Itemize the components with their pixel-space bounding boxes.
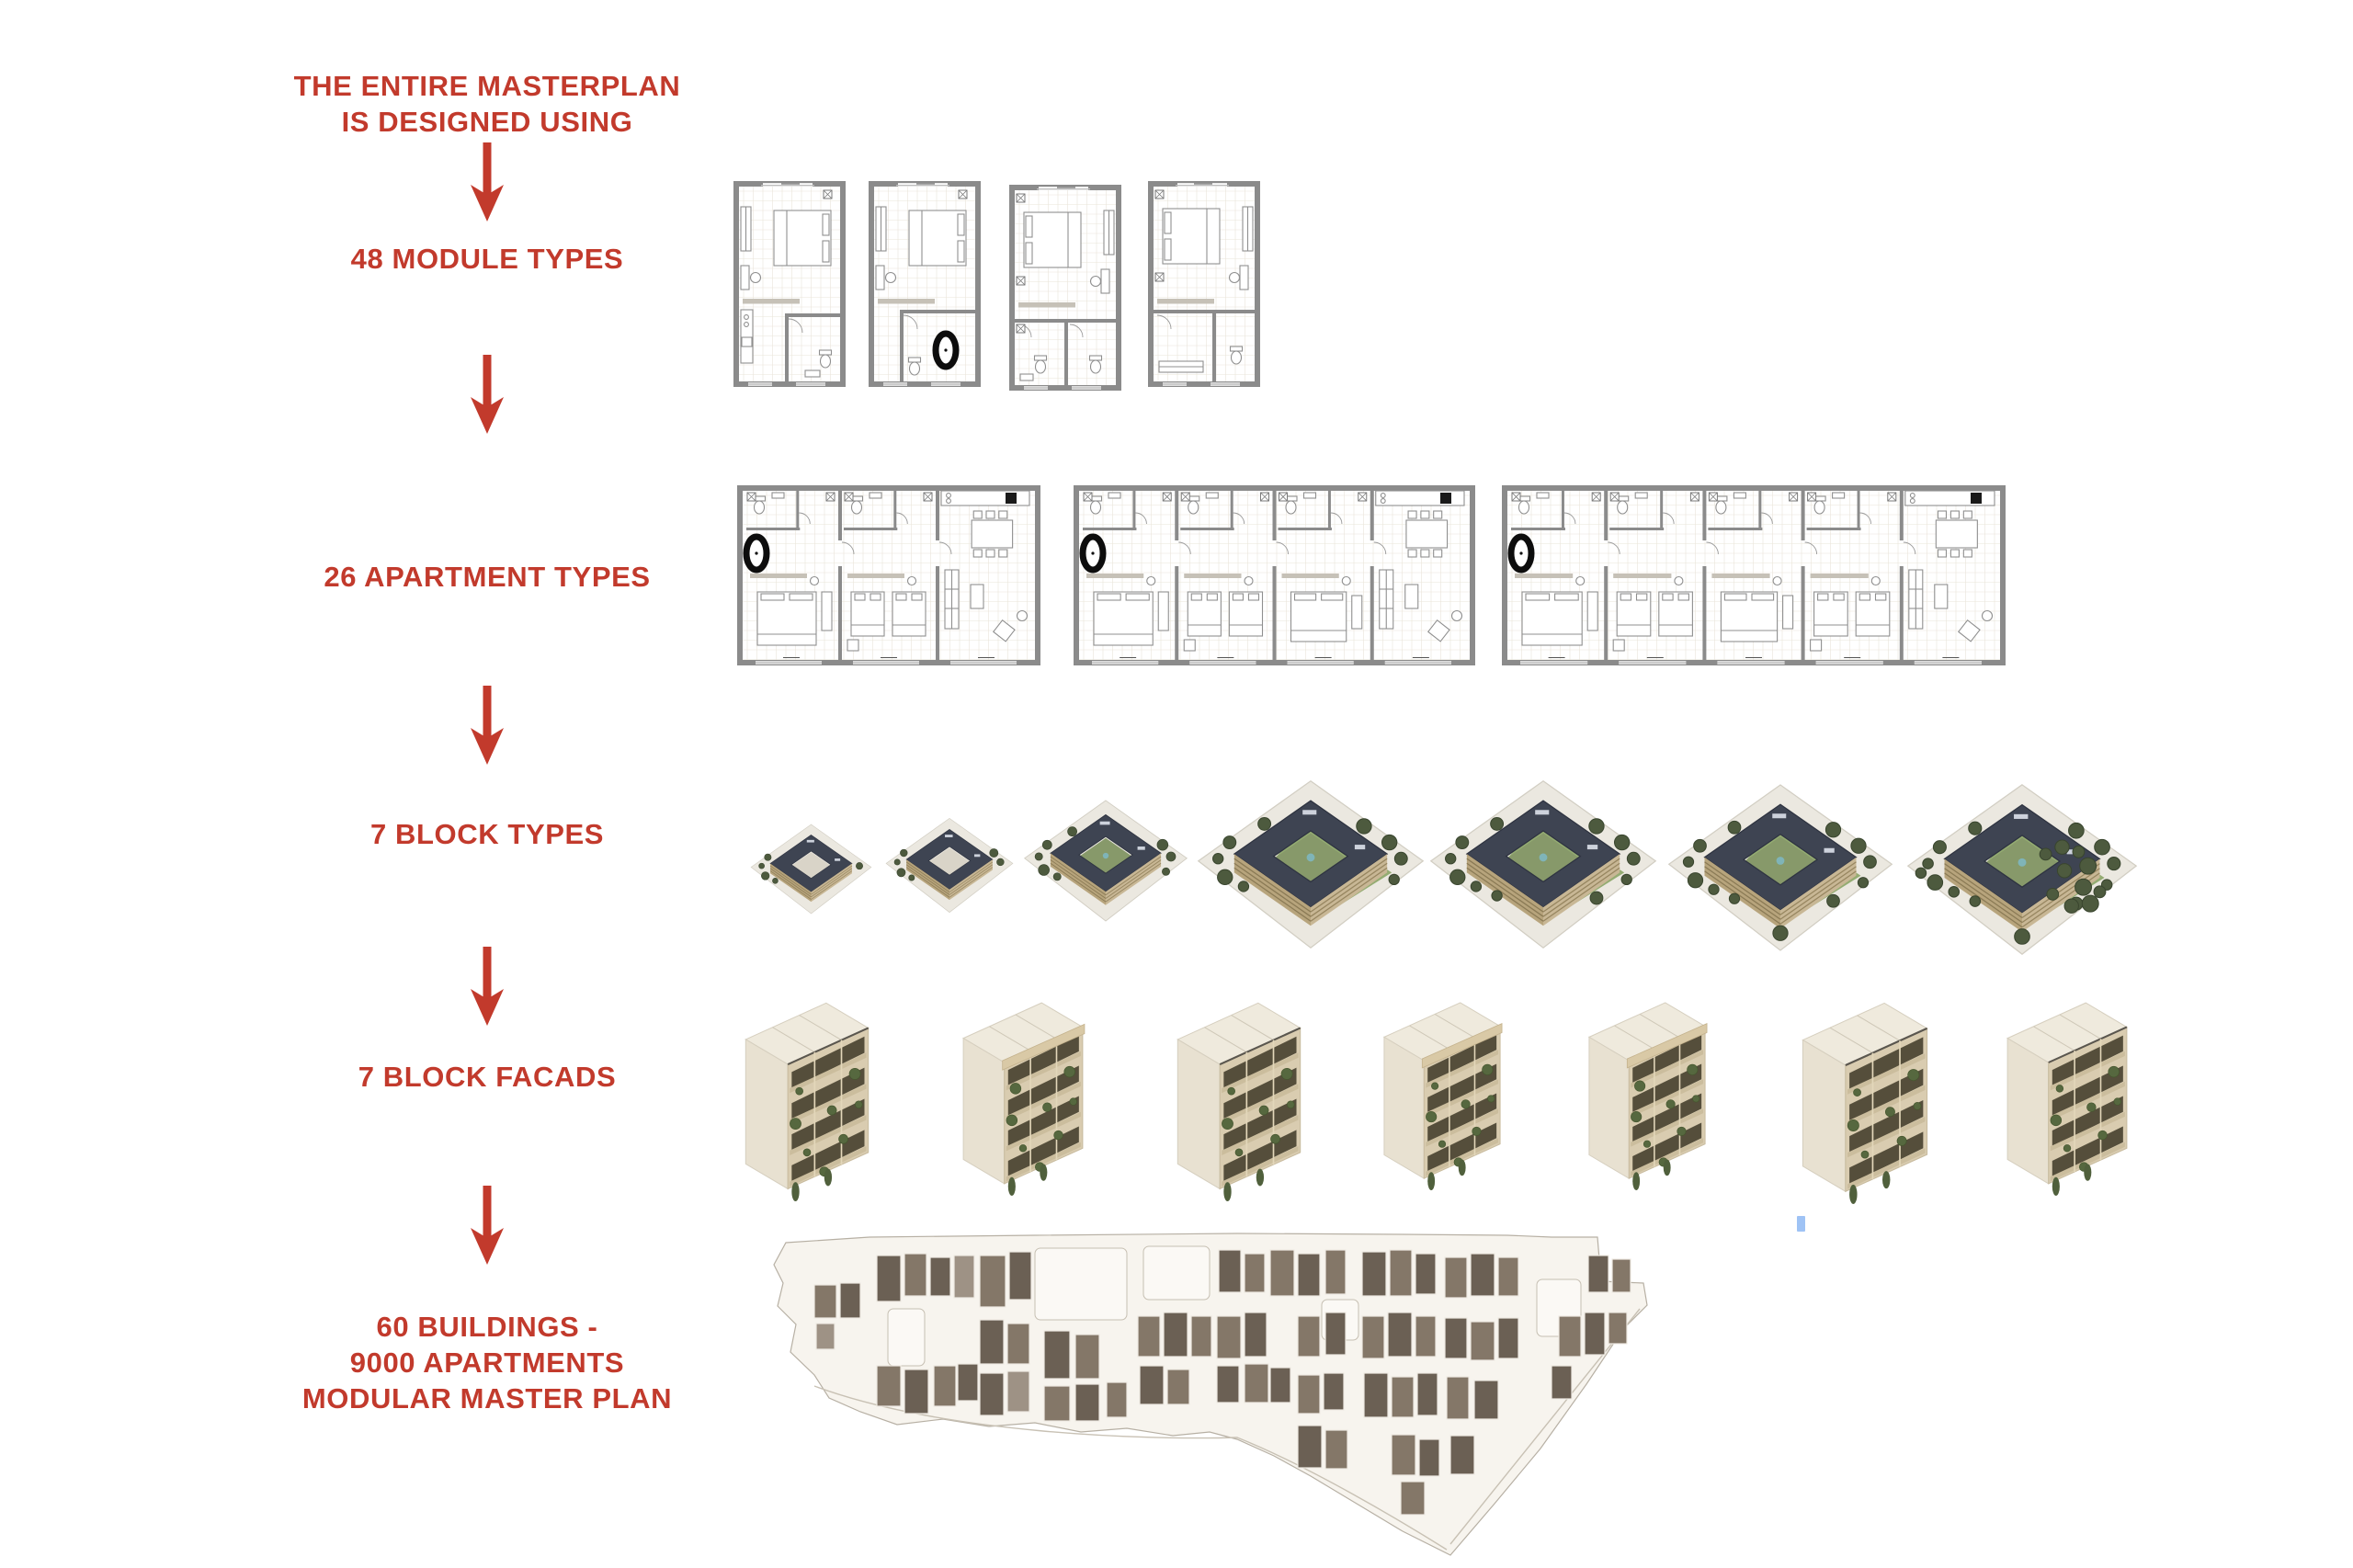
block-type-7 xyxy=(1904,781,2140,958)
result-line-1: 60 BUILDINGS - xyxy=(302,1309,672,1345)
apartment-plan-2 xyxy=(1074,485,1475,665)
block-type-5 xyxy=(1427,778,1659,951)
block-facade-3 xyxy=(1172,995,1306,1201)
step-label-block-facades: 7 BLOCK FACADS xyxy=(358,1059,617,1095)
down-arrow-4 xyxy=(467,947,507,1026)
block-type-4 xyxy=(1195,778,1427,951)
down-arrow-1 xyxy=(467,142,507,222)
result-text: 60 BUILDINGS - 9000 APARTMENTS MODULAR M… xyxy=(302,1309,672,1416)
module-plan-4 xyxy=(1148,181,1260,387)
block-facade-4 xyxy=(1379,995,1506,1190)
result-line-3: MODULAR MASTER PLAN xyxy=(302,1381,672,1416)
intro-line-2: IS DESIGNED USING xyxy=(294,104,681,140)
down-arrow-3 xyxy=(467,686,507,765)
step-label-apartment-types: 26 APARTMENT TYPES xyxy=(324,559,650,595)
cursor-artifact xyxy=(1797,1216,1805,1232)
block-facade-5 xyxy=(1584,995,1711,1190)
block-type-6 xyxy=(1665,781,1895,954)
result-line-2: 9000 APARTMENTS xyxy=(302,1345,672,1381)
apartment-plan-1 xyxy=(737,485,1040,665)
apartment-plan-3 xyxy=(1502,485,2006,665)
intro-text: THE ENTIRE MASTERPLAN IS DESIGNED USING xyxy=(294,68,681,140)
block-facade-1 xyxy=(740,995,874,1201)
module-plan-3 xyxy=(1009,185,1121,391)
block-facade-2 xyxy=(958,995,1088,1196)
module-plan-2 xyxy=(869,181,981,387)
modular-master-plan-map xyxy=(759,1228,1667,1559)
block-type-1 xyxy=(749,823,873,915)
step-label-module-types: 48 MODULE TYPES xyxy=(351,241,624,277)
module-plan-1 xyxy=(733,181,846,387)
masterplan-flow-diagram: THE ENTIRE MASTERPLAN IS DESIGNED USING … xyxy=(0,0,2353,1568)
block-facade-7 xyxy=(2002,995,2132,1196)
step-label-block-types: 7 BLOCK TYPES xyxy=(370,816,604,852)
block-facade-6 xyxy=(1797,995,1933,1204)
block-type-2 xyxy=(884,816,1015,915)
down-arrow-5 xyxy=(467,1186,507,1265)
down-arrow-2 xyxy=(467,355,507,434)
block-type-3 xyxy=(1022,798,1189,924)
intro-line-1: THE ENTIRE MASTERPLAN xyxy=(294,68,681,104)
